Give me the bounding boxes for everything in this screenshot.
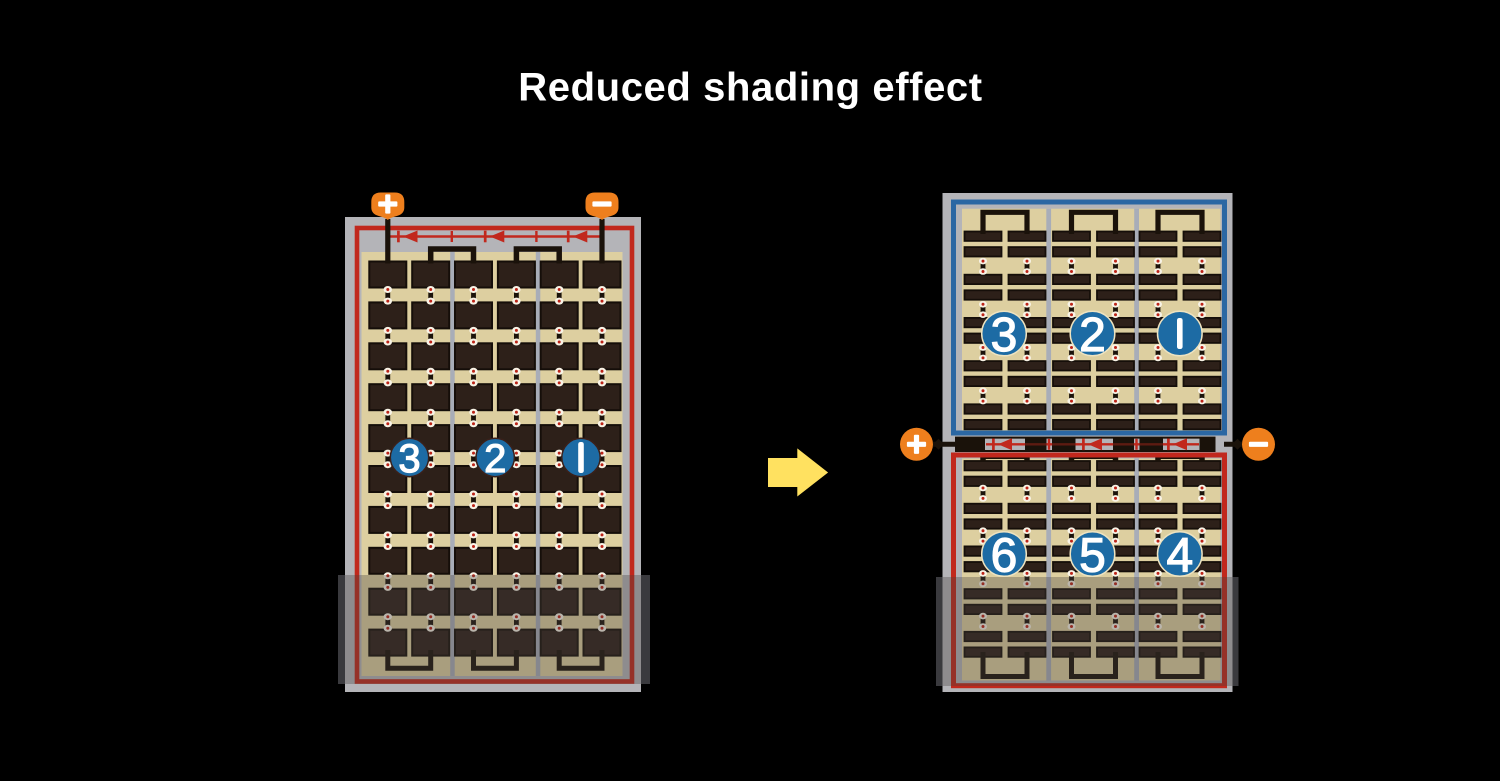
svg-text:Reduced shading effect: Reduced shading effect: [518, 66, 982, 110]
svg-text:2: 2: [484, 437, 506, 481]
svg-text:3: 3: [398, 437, 420, 481]
svg-text:5: 5: [1079, 529, 1106, 582]
svg-text:3: 3: [991, 309, 1018, 362]
svg-text:4: 4: [1166, 529, 1193, 582]
svg-text:2: 2: [1079, 309, 1106, 362]
svg-text:6: 6: [991, 529, 1018, 582]
